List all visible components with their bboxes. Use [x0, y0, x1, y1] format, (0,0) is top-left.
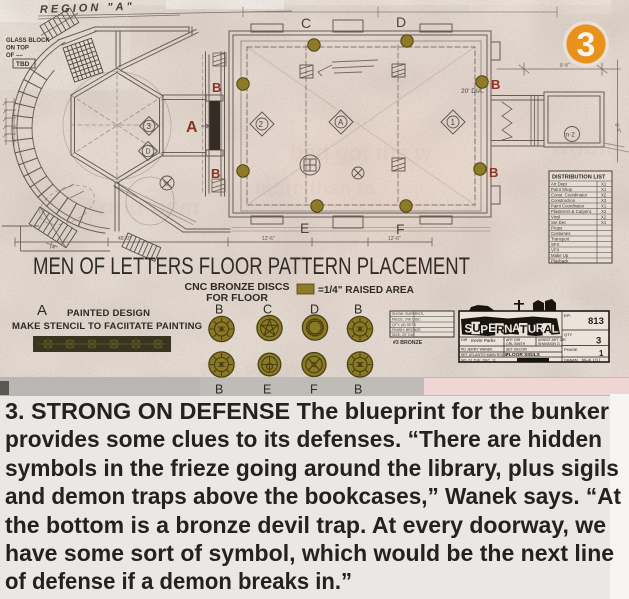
- svg-text:C: C: [301, 15, 311, 31]
- svg-text:1: 1: [451, 118, 456, 127]
- svg-text:B: B: [354, 303, 362, 317]
- svg-text:A: A: [338, 118, 344, 127]
- svg-text:MAKE STENCIL TO FACIITATE PAIN: MAKE STENCIL TO FACIITATE PAINTING: [12, 321, 202, 332]
- svg-text:X1: X1: [601, 220, 607, 225]
- svg-text:B: B: [212, 80, 221, 95]
- svg-text:Construction: Construction: [551, 198, 576, 203]
- svg-text:OF ––: OF ––: [6, 53, 23, 59]
- svg-text:3: 3: [596, 336, 601, 347]
- svg-text:F: F: [310, 383, 318, 397]
- svg-text:A: A: [37, 302, 47, 319]
- svg-text:Plasterers & Carpent.: Plasterers & Carpent.: [551, 209, 592, 214]
- svg-text:E: E: [300, 220, 309, 236]
- svg-text:a bit of it was: a bit of it was: [200, 358, 320, 379]
- svg-text:Const. Coordinator: Const. Coordinator: [551, 193, 588, 198]
- svg-text:B: B: [491, 77, 500, 92]
- svg-text:=1/4" RAISED AREA: =1/4" RAISED AREA: [318, 285, 414, 296]
- svg-text:DISTRIBUTION LIST: DISTRIBUTION LIST: [552, 175, 606, 181]
- svg-text:E: E: [488, 323, 496, 335]
- svg-text:Kevin Parks: Kevin Parks: [471, 338, 496, 343]
- svg-text:Transport: Transport: [551, 237, 570, 242]
- svg-text:EPI: EPI: [564, 313, 570, 318]
- svg-text:B: B: [211, 166, 220, 181]
- svg-text:PAINTED DESIGN: PAINTED DESIGN: [67, 308, 150, 319]
- svg-text:3: 3: [577, 26, 596, 64]
- svg-text:X1: X1: [601, 204, 607, 209]
- svg-text:bluow: bluow: [550, 134, 620, 161]
- svg-text:TBD: TBD: [16, 61, 30, 68]
- svg-text:X2: X2: [601, 215, 607, 220]
- svg-text:more than ts: more than ts: [255, 178, 375, 200]
- svg-text:Paint Coordinator: Paint Coordinator: [551, 204, 585, 209]
- svg-text:F: F: [396, 221, 405, 237]
- svg-text:3: 3: [147, 122, 152, 131]
- svg-text:VFX: VFX: [551, 248, 559, 253]
- svg-text:Playback: Playback: [551, 259, 569, 264]
- svg-text:it had to be what: it had to be what: [210, 380, 305, 394]
- svg-text:QTY: QTY: [564, 332, 573, 337]
- svg-text:PIECE: 24K DISC: PIECE: 24K DISC: [392, 318, 421, 322]
- svg-text:L: L: [551, 323, 558, 335]
- svg-text:Paint Shop: Paint Shop: [551, 187, 573, 192]
- svg-text:9'-6": 9'-6": [560, 62, 571, 69]
- svg-text:FINISH: BRONZE: FINISH: BRONZE: [392, 328, 421, 332]
- svg-text:B: B: [354, 383, 362, 397]
- svg-text:#3 BRONZE: #3 BRONZE: [393, 340, 423, 346]
- svg-text:PHASE: PHASE: [564, 347, 578, 352]
- svg-text:SET ATLANTIS MAIN ROOM: SET ATLANTIS MAIN ROOM: [461, 353, 508, 357]
- svg-text:A: A: [186, 119, 198, 136]
- svg-text:X1: X1: [601, 182, 607, 187]
- svg-text:45'-0": 45'-0": [118, 236, 131, 242]
- svg-text:mad bno: mad bno: [100, 194, 200, 221]
- svg-text:B: B: [215, 303, 223, 317]
- svg-text:Set Dec: Set Dec: [551, 220, 567, 225]
- svg-text:C: C: [263, 303, 272, 317]
- svg-text:Props: Props: [551, 226, 562, 231]
- svg-text:QTY: (8) SETS: QTY: (8) SETS: [392, 323, 417, 327]
- svg-text:SIZE: 20" DIA: SIZE: 20" DIA: [392, 333, 415, 337]
- svg-text:T: T: [520, 324, 527, 336]
- svg-text:Costumes: Costumes: [551, 231, 570, 236]
- svg-text:12: 12: [164, 182, 170, 188]
- svg-text:4': 4': [52, 245, 56, 251]
- svg-text:SHOW: SUPERNTL: SHOW: SUPERNTL: [392, 312, 424, 316]
- svg-text:SHANNON G: SHANNON G: [538, 342, 560, 346]
- svg-text:X3: X3: [601, 198, 607, 203]
- svg-text:20' DIA.: 20' DIA.: [461, 88, 484, 95]
- svg-text:GLASS BLOCK: GLASS BLOCK: [6, 38, 50, 44]
- svg-text:X1: X1: [601, 187, 607, 192]
- svg-text:M–K LIU: M–K LIU: [582, 358, 600, 363]
- svg-text:PD JERRY WANEK: PD JERRY WANEK: [461, 348, 493, 352]
- svg-text:NO. 01 TUE. DEC. 11: NO. 01 TUE. DEC. 11: [461, 358, 496, 362]
- svg-text:X2: X2: [601, 209, 607, 214]
- svg-text:D: D: [396, 14, 406, 30]
- svg-text:D: D: [146, 149, 151, 156]
- svg-text:had got the w: had got the w: [290, 140, 433, 165]
- svg-text:Art Dept: Art Dept: [551, 182, 568, 187]
- svg-text:MEN OF LETTERS FLOOR PATTERN P: MEN OF LETTERS FLOOR PATTERN PLACEMENT: [33, 253, 470, 280]
- svg-text:SFX: SFX: [551, 242, 559, 247]
- svg-text:DIR: DIR: [461, 338, 468, 342]
- svg-text:Make Up: Make Up: [551, 253, 569, 258]
- svg-text:Vinyl: Vinyl: [551, 215, 560, 220]
- svg-text:ON TOP: ON TOP: [6, 46, 29, 52]
- svg-text:813: 813: [588, 316, 604, 327]
- svg-text:DRAWN:: DRAWN:: [564, 358, 578, 362]
- svg-text:CRL SMITH: CRL SMITH: [506, 342, 526, 346]
- svg-text:12'-6": 12'-6": [262, 236, 275, 242]
- svg-text:B: B: [489, 165, 498, 180]
- svg-text:2: 2: [259, 120, 264, 129]
- svg-text:SET DECOR: SET DECOR: [506, 348, 527, 352]
- svg-text:X2: X2: [601, 193, 607, 198]
- svg-text:FLOOR SIGILS: FLOOR SIGILS: [506, 352, 541, 358]
